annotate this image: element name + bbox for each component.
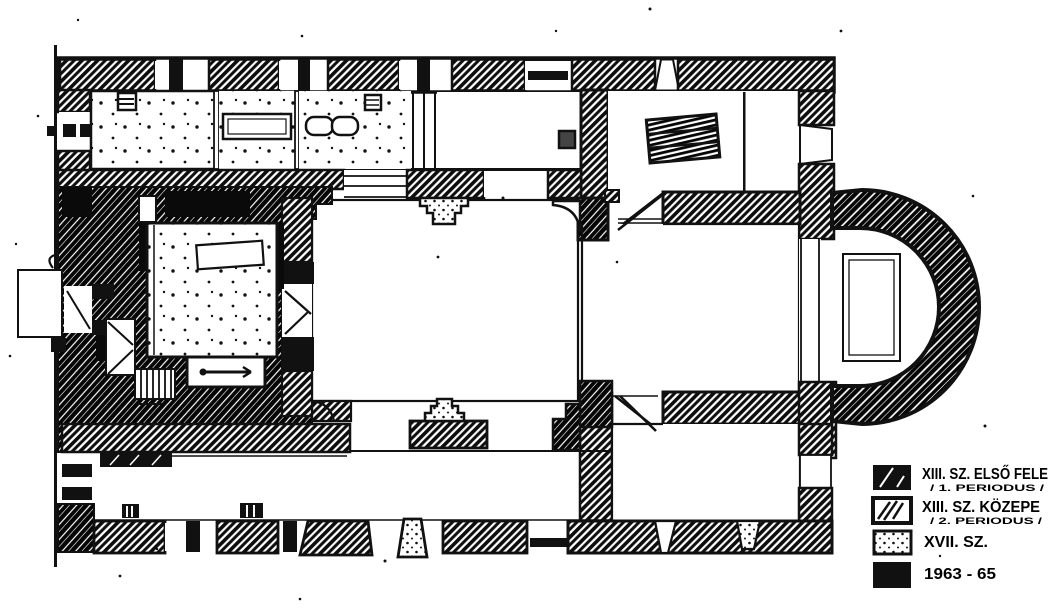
svg-text:XIII. SZ. ELSŐ FELE: XIII. SZ. ELSŐ FELE [922,464,1048,483]
svg-text:/ 1. PERIODUS /: / 1. PERIODUS / [930,483,1045,494]
svg-text:XIII. SZ. KÖZEPE: XIII. SZ. KÖZEPE [922,497,1040,516]
svg-text:1963 - 65: 1963 - 65 [924,566,996,583]
svg-text:/ 2. PERIODUS /: / 2. PERIODUS / [930,516,1043,527]
svg-text:XVII. SZ.: XVII. SZ. [924,534,988,551]
